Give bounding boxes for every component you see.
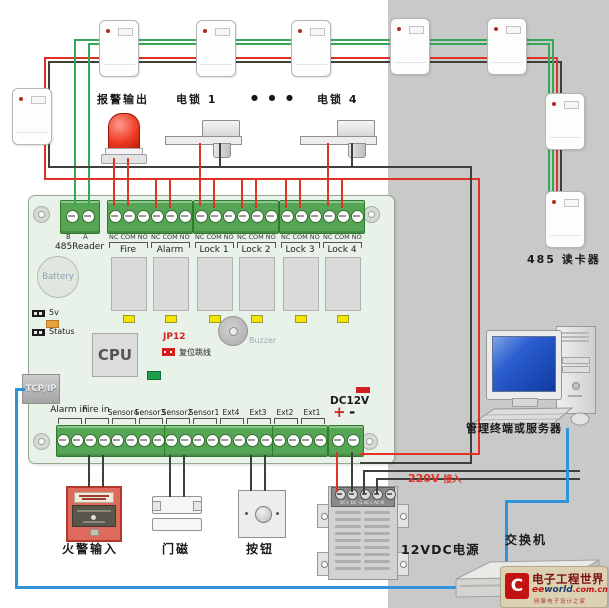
reader-led <box>106 29 110 33</box>
reader-window <box>118 28 133 36</box>
led-5v-label: 5v <box>49 308 59 317</box>
door-contact-switch <box>152 496 202 514</box>
terminal <box>123 210 136 223</box>
tcpip-port: TCP/IP <box>22 374 60 404</box>
terminal <box>57 434 70 447</box>
wire <box>336 452 338 492</box>
terminal <box>351 210 364 223</box>
terminal <box>273 434 286 447</box>
wire <box>88 43 90 206</box>
wire <box>255 178 257 208</box>
wire <box>341 178 343 208</box>
wire <box>15 388 18 589</box>
wire <box>113 158 115 206</box>
lock1-label: 电锁 1 <box>176 91 217 107</box>
dc12v-plus: + <box>333 403 346 421</box>
wire <box>299 178 301 208</box>
psu-vent <box>335 525 361 528</box>
reader-slot <box>103 64 135 65</box>
psu-vent <box>364 567 390 570</box>
buzzer-label: Buzzer <box>249 336 276 345</box>
wire <box>376 478 378 494</box>
relay <box>325 257 361 311</box>
relay-group-label: Lock 3 <box>282 245 318 255</box>
group-bracket <box>247 418 271 424</box>
psu-vent <box>364 511 390 514</box>
terminal <box>111 434 124 447</box>
wire <box>264 455 266 491</box>
reader-slot <box>549 137 581 138</box>
relay-led <box>337 315 349 323</box>
card-reader <box>390 18 430 75</box>
wire <box>169 455 171 497</box>
door-contact-label: 门磁 <box>162 540 190 557</box>
relay <box>111 257 147 311</box>
reader-led <box>552 200 556 204</box>
psu-vent <box>335 553 361 556</box>
watermark-tagline: 网聚电子设计之家 <box>534 597 586 605</box>
terminal <box>192 434 205 447</box>
reader-led <box>494 27 498 31</box>
lock1-cylinder <box>213 143 231 158</box>
terminal <box>260 434 273 447</box>
cpu-chip: CPU <box>92 333 138 377</box>
watermark-site-world: world <box>544 585 572 595</box>
screw-hole <box>33 206 50 223</box>
reader-led <box>298 29 302 33</box>
relay-led <box>209 315 221 323</box>
psu-vent <box>364 518 390 521</box>
psu-vent <box>335 567 361 570</box>
reader-led <box>552 102 556 106</box>
reader-port-pin-b: B <box>66 233 71 241</box>
pin-header: NC COM NO <box>151 233 190 241</box>
terminal <box>219 434 232 447</box>
terminal <box>295 210 308 223</box>
psu-vent <box>364 546 390 549</box>
psu-screw <box>360 489 371 500</box>
wire <box>102 455 104 487</box>
wire <box>285 178 287 208</box>
relay-group-label: Lock 2 <box>238 245 274 255</box>
ac-input-voltage: 220V <box>408 472 439 485</box>
terminal <box>151 210 164 223</box>
group-bracket <box>220 418 244 424</box>
group-bracket <box>139 418 163 424</box>
fire-device-label-strip <box>74 492 114 503</box>
terminal <box>246 434 259 447</box>
wire <box>360 453 480 455</box>
reader-slot <box>295 64 327 65</box>
pin-header: NC COM NO <box>109 233 148 241</box>
relay-group-label: Fire <box>110 245 146 255</box>
pin-header: NC COM NO <box>281 233 320 241</box>
ac-input-label: 220V 接入 <box>408 472 461 485</box>
terminal <box>332 434 345 447</box>
relay-led <box>165 315 177 323</box>
watermark-site-suffix: .com.cn <box>573 585 608 594</box>
card-reader <box>99 20 139 77</box>
terminal <box>152 434 165 447</box>
reader-slot <box>16 132 48 133</box>
wire <box>183 455 185 497</box>
wire <box>351 143 353 168</box>
card-reader <box>487 18 527 75</box>
terminal <box>223 210 236 223</box>
psu-vent <box>335 532 361 535</box>
psu-vent <box>364 525 390 528</box>
ellipsis-dots: ● ● ● <box>251 93 297 102</box>
wire <box>376 478 580 480</box>
reader-slot <box>491 62 523 63</box>
relay <box>153 257 189 311</box>
terminal <box>237 210 250 223</box>
fire-device-glass <box>72 505 116 527</box>
group-bracket <box>166 418 190 424</box>
wire <box>88 455 90 487</box>
pin-header: NC COM NO <box>195 233 234 241</box>
wire <box>360 462 472 464</box>
reader-window <box>506 26 521 34</box>
terminal <box>179 210 192 223</box>
fire-device-reset <box>90 529 99 536</box>
group-bracket <box>112 418 136 424</box>
lock4-label: 电锁 4 <box>317 91 358 107</box>
psu-vent <box>335 546 361 549</box>
terminal <box>125 434 138 447</box>
exit-button-label: 按钮 <box>246 540 274 557</box>
terminal <box>84 434 97 447</box>
red-component <box>356 387 370 393</box>
psu-vent <box>364 553 390 556</box>
terminal <box>347 434 360 447</box>
green-component <box>147 371 161 380</box>
psu-vent <box>335 560 361 563</box>
dc12v-minus: - <box>349 403 355 421</box>
wire <box>327 143 329 206</box>
terminal <box>66 210 79 223</box>
screw-hole <box>33 433 50 450</box>
wire <box>48 166 472 168</box>
psu-vent <box>364 560 390 563</box>
terminal <box>98 434 111 447</box>
screw-hole <box>363 206 380 223</box>
door-contact-magnet <box>152 518 202 531</box>
wire <box>505 500 569 503</box>
reader-led <box>203 29 207 33</box>
card-reader <box>545 191 585 248</box>
group-bracket <box>85 418 109 424</box>
group-bracket <box>193 418 217 424</box>
wire <box>478 178 480 455</box>
wire <box>241 178 243 208</box>
reader-window <box>310 28 325 36</box>
relay-group-label: Alarm <box>152 245 188 255</box>
psu-vent <box>335 518 361 521</box>
psu-vent <box>364 532 390 535</box>
led-status <box>32 329 45 336</box>
group-bracket <box>274 418 298 424</box>
group-bracket <box>301 418 325 424</box>
computer-label: 管理终端或服务器 <box>466 420 562 436</box>
card-reader <box>196 20 236 77</box>
eeworld-watermark: C 电子工程世界 eeworld.com.cn 网聚电子设计之家 <box>500 566 608 608</box>
wiring-diagram: Battery 5v Status CPU JP12 复位跳线 Buzzer T… <box>0 0 609 608</box>
relay <box>197 257 233 311</box>
terminal <box>138 434 151 447</box>
terminal <box>337 210 350 223</box>
reader-slot <box>200 64 232 65</box>
wire <box>213 178 215 208</box>
pin-header: NC COM NO <box>237 233 276 241</box>
reader-window <box>564 101 579 109</box>
switch-label: 交换机 <box>505 531 547 548</box>
terminal <box>314 434 327 447</box>
psu-terminal-labels: DC+ DC- G AC-L AC-N <box>331 500 393 505</box>
relay <box>283 257 319 311</box>
terminal <box>71 434 84 447</box>
terminal <box>323 210 336 223</box>
wire <box>363 470 365 494</box>
pin-header: NC COM NO <box>323 233 362 241</box>
terminal <box>109 210 122 223</box>
terminal <box>287 434 300 447</box>
computer-monitor <box>486 330 562 400</box>
psu-vent <box>335 511 361 514</box>
reader-port-pin-a: A <box>83 233 88 241</box>
jp12-jumper <box>162 348 175 356</box>
relay-led <box>295 315 307 323</box>
battery-label: Battery <box>38 272 78 282</box>
fire-input-label: 火警输入 <box>62 540 118 557</box>
eeworld-logo: C <box>505 573 529 599</box>
wire <box>155 178 157 208</box>
reader-window <box>31 96 46 104</box>
terminal <box>165 210 178 223</box>
terminal <box>265 210 278 223</box>
reader-slot <box>549 235 581 236</box>
ac-input-text: 接入 <box>443 475 461 485</box>
exit-button-device <box>238 490 286 538</box>
wire <box>169 178 171 208</box>
terminal <box>82 210 95 223</box>
reader-window <box>409 26 424 34</box>
alarm-beacon-base <box>101 154 147 164</box>
terminal <box>206 434 219 447</box>
battery: Battery <box>37 256 79 298</box>
watermark-site-ee: ee <box>532 585 544 595</box>
wire <box>44 178 480 180</box>
reader-window <box>564 199 579 207</box>
terminal <box>309 210 322 223</box>
psu-vent <box>335 539 361 542</box>
wire <box>219 143 221 168</box>
relay <box>239 257 275 311</box>
background-panel <box>388 0 609 608</box>
card-reader <box>545 93 585 150</box>
led-status-label: Status <box>49 327 75 336</box>
jp12-desc: 复位跳线 <box>179 347 211 358</box>
relay-group-label: Lock 1 <box>196 245 232 255</box>
terminal <box>251 210 264 223</box>
reader-port-label: 485Reader <box>55 242 104 252</box>
wire <box>363 470 580 472</box>
card-reader <box>291 20 331 77</box>
wire <box>351 452 353 492</box>
reader-window <box>215 28 230 36</box>
wire <box>566 428 569 503</box>
terminal <box>209 210 222 223</box>
wire <box>15 586 470 589</box>
terminal <box>281 210 294 223</box>
reader-led <box>19 97 23 101</box>
reader-chain-label: 485 读卡器 <box>527 251 601 267</box>
relay-led <box>251 315 263 323</box>
input-group-label: Ext1 <box>290 408 334 417</box>
terminal <box>300 434 313 447</box>
terminal <box>165 434 178 447</box>
jp12-label: JP12 <box>163 332 185 342</box>
wire <box>127 158 129 206</box>
reader-slot <box>394 62 426 63</box>
alarm-output-label: 报警输出 <box>97 91 149 107</box>
reader-led <box>397 27 401 31</box>
relay-led <box>123 315 135 323</box>
psu-label: 12VDC电源 <box>401 539 480 558</box>
led-5v <box>32 310 45 317</box>
wire <box>74 39 76 206</box>
wire <box>250 455 252 491</box>
terminal <box>195 210 208 223</box>
group-bracket <box>58 418 82 424</box>
wire <box>199 143 201 206</box>
watermark-site: eeworld.com.cn <box>532 585 608 595</box>
buzzer <box>218 316 248 346</box>
terminal <box>233 434 246 447</box>
fire-input-device <box>66 486 122 542</box>
psu-vent <box>364 539 390 542</box>
psu-screw <box>385 489 396 500</box>
relay-group-label: Lock 4 <box>324 245 360 255</box>
alarm-beacon-dome <box>108 113 140 151</box>
card-reader <box>12 88 52 145</box>
terminal <box>137 210 150 223</box>
terminal <box>179 434 192 447</box>
